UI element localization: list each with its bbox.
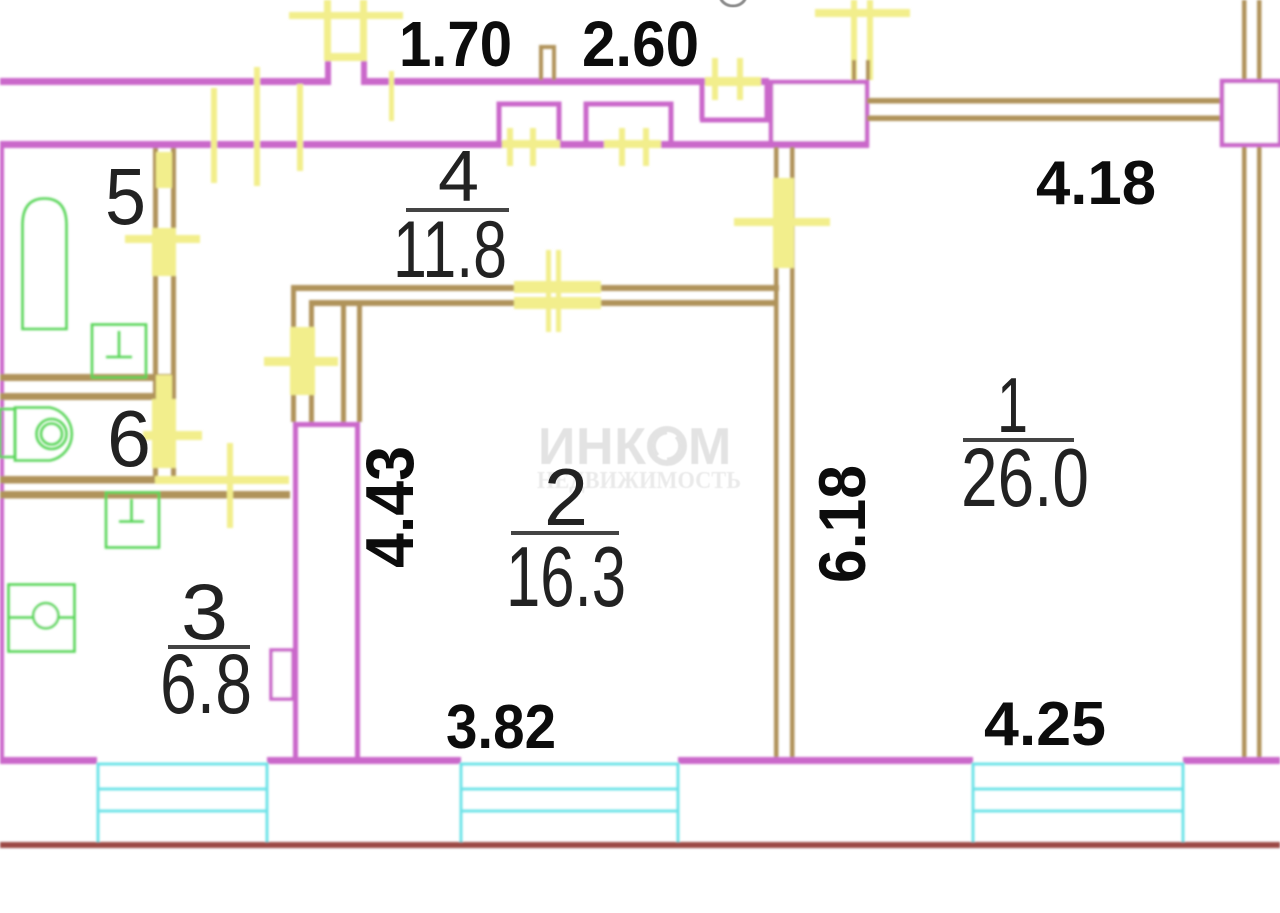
svg-text:4.43: 4.43: [352, 446, 428, 568]
svg-text:5: 5: [105, 152, 146, 241]
svg-text:4.25: 4.25: [984, 690, 1106, 759]
svg-text:3.82: 3.82: [446, 693, 556, 762]
svg-text:26.0: 26.0: [961, 431, 1089, 524]
svg-text:16.3: 16.3: [506, 530, 626, 625]
svg-text:6.8: 6.8: [160, 637, 252, 731]
svg-text:1.70: 1.70: [399, 8, 512, 80]
svg-text:6.18: 6.18: [805, 465, 879, 583]
svg-text:11.8: 11.8: [393, 205, 507, 295]
svg-text:6: 6: [107, 394, 151, 483]
svg-text:4.18: 4.18: [1036, 149, 1156, 218]
svg-text:2.60: 2.60: [582, 8, 699, 80]
